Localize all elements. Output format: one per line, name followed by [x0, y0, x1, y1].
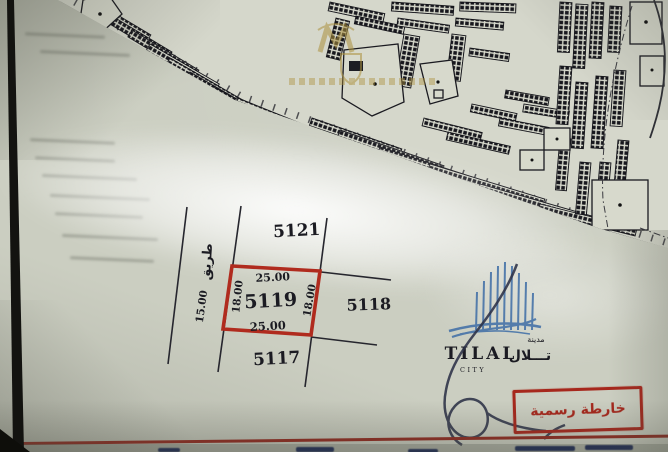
dimension-bottom: 25.00	[249, 318, 286, 334]
scanned-site-plan-document: 5121 5118 5117 5119 25.00 25.00 18.00 18…	[0, 0, 668, 452]
tilal-towers-logo-icon	[449, 262, 541, 337]
dimension-top: 25.00	[255, 270, 290, 285]
corner-shadow	[508, 0, 668, 120]
edge-shadow	[608, 230, 668, 452]
selected-plot-label: 5119	[244, 289, 298, 314]
dimension-left: 18.00	[230, 280, 245, 314]
tilal-arabic-small-label: مدينة	[527, 335, 544, 344]
road-label: طريق	[199, 243, 217, 281]
edge-shadow	[0, 300, 200, 452]
tilal-arabic-label: تـــلال	[509, 348, 551, 364]
plot-label-5121: 5121	[273, 220, 321, 242]
plot-label-5118: 5118	[346, 294, 391, 315]
plot-label-5117: 5117	[253, 348, 301, 370]
corner-shadow	[0, 0, 220, 160]
tilal-city-label: CITY	[460, 366, 486, 374]
